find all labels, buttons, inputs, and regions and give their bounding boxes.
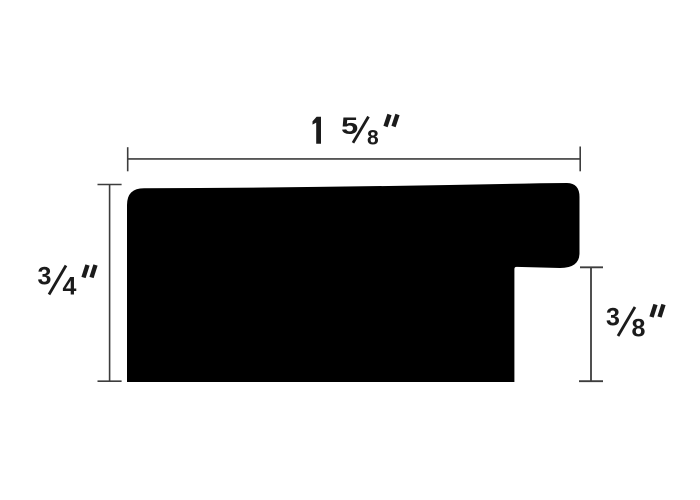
svg-text:4: 4 [63,273,77,301]
svg-text:8: 8 [632,315,646,343]
svg-text:5: 5 [341,112,358,139]
svg-text:3: 3 [38,263,52,291]
svg-text:3: 3 [606,303,620,331]
svg-text:8: 8 [367,127,379,150]
